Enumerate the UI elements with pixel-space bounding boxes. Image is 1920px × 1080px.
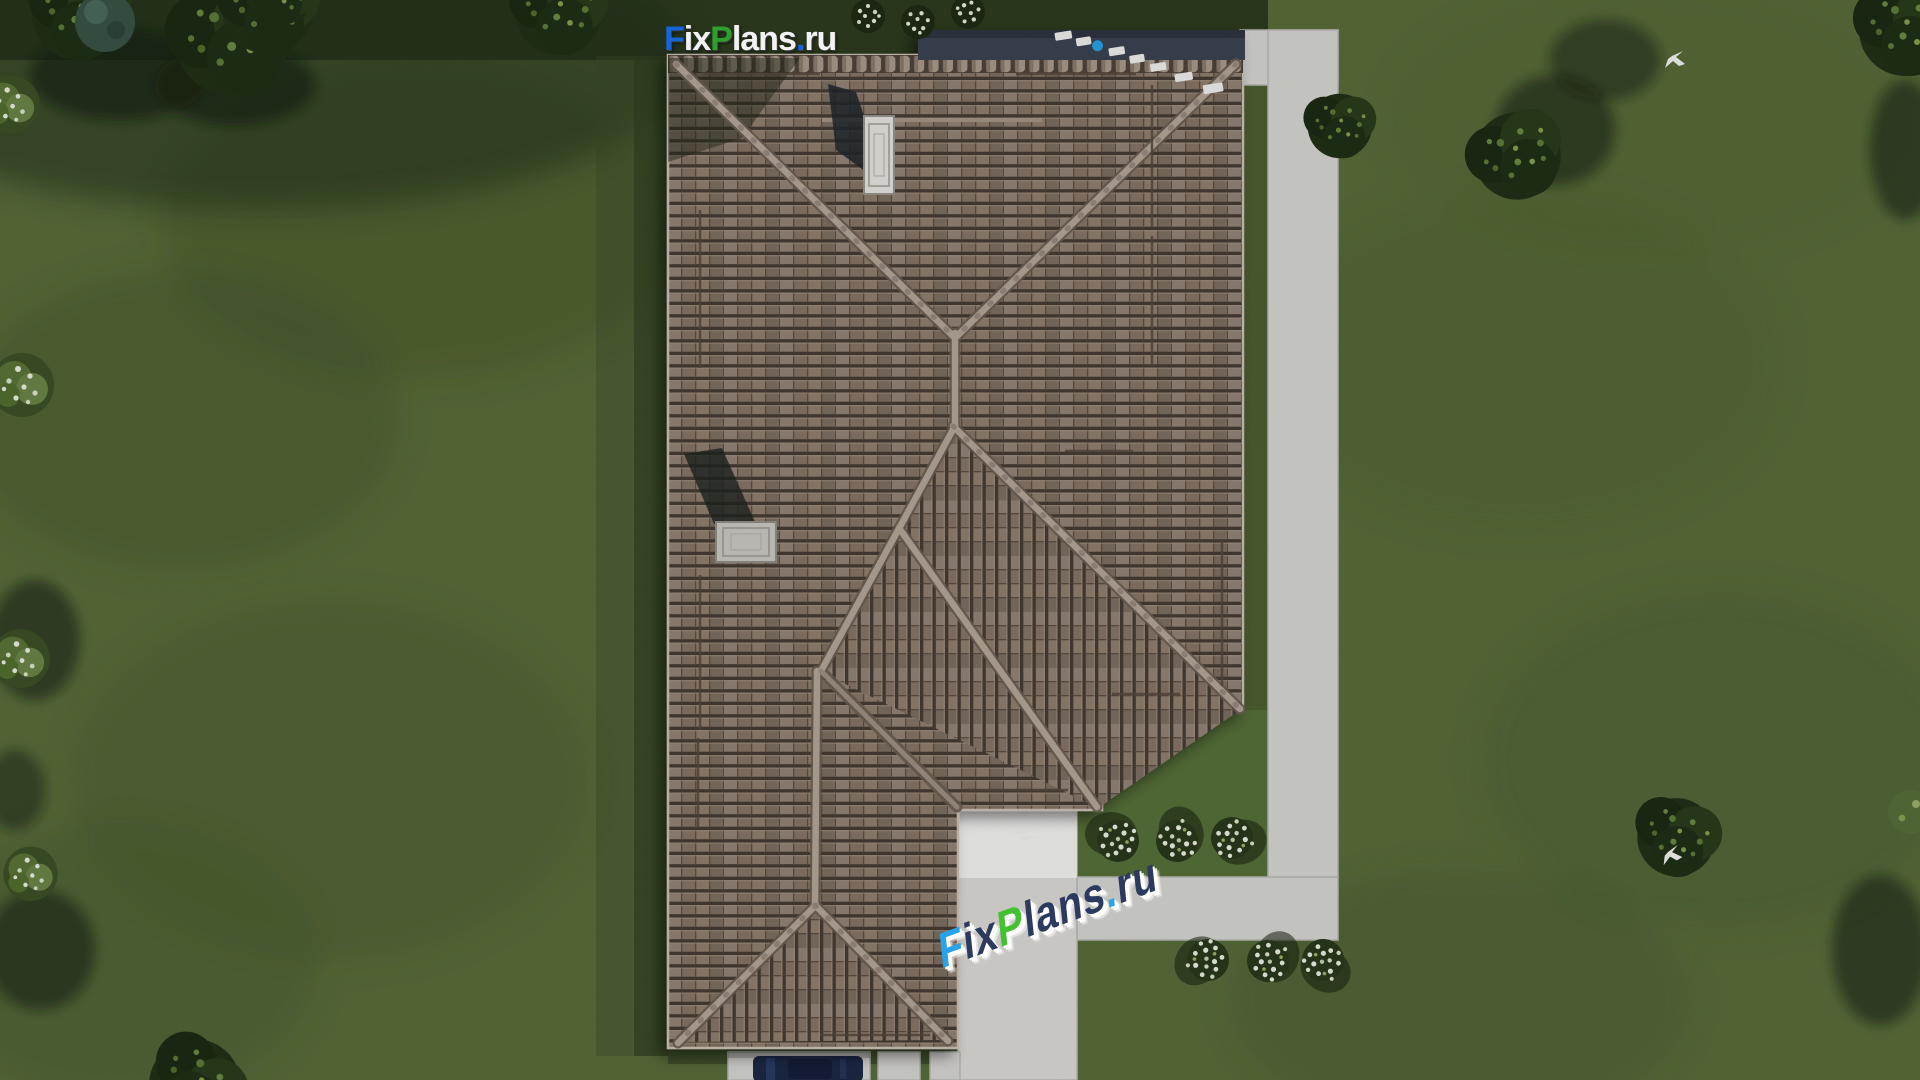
watermark-letter: ru (804, 20, 836, 58)
aerial-house-render: FixPlans.ru FixPlans.ru (0, 0, 1920, 1080)
watermark-letter: lans (732, 20, 796, 58)
watermark-letter: P (710, 20, 732, 58)
watermark-letter: F (664, 20, 684, 58)
watermark-top: FixPlans.ru (664, 20, 836, 59)
watermark-letter: ix (684, 20, 710, 58)
